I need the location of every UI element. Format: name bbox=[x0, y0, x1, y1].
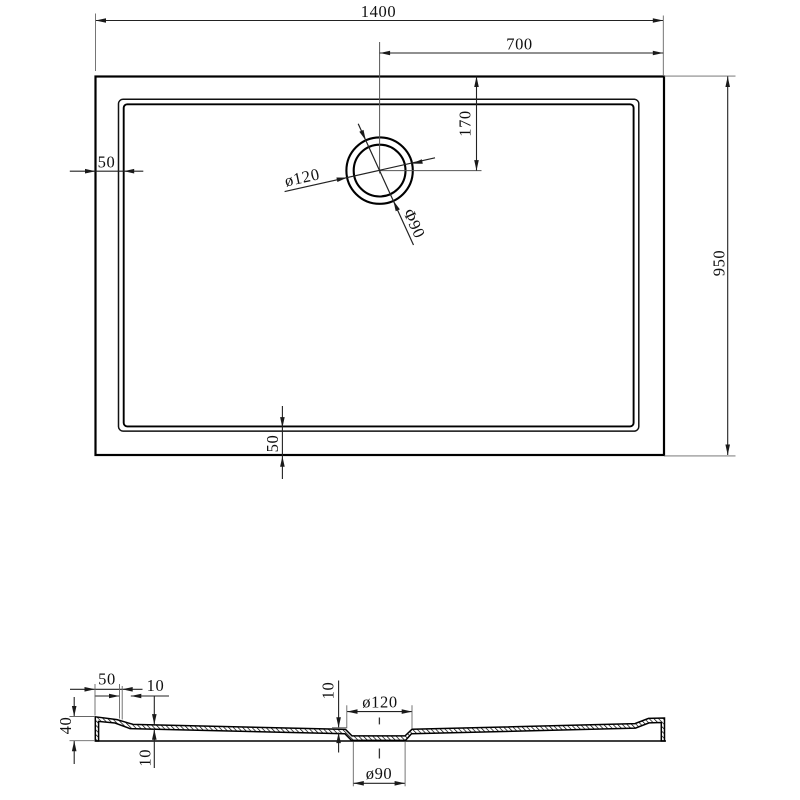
svg-text:700: 700 bbox=[506, 35, 533, 54]
svg-text:10: 10 bbox=[319, 682, 338, 700]
svg-text:170: 170 bbox=[456, 110, 475, 137]
svg-text:50: 50 bbox=[98, 152, 116, 171]
svg-text:1400: 1400 bbox=[361, 2, 396, 21]
svg-text:10: 10 bbox=[147, 676, 165, 695]
svg-text:50: 50 bbox=[263, 435, 282, 453]
svg-text:ø120: ø120 bbox=[362, 693, 397, 712]
svg-text:40: 40 bbox=[56, 717, 75, 735]
svg-text:950: 950 bbox=[710, 250, 729, 277]
svg-text:ø90: ø90 bbox=[366, 764, 393, 783]
svg-text:10: 10 bbox=[136, 749, 155, 767]
svg-text:50: 50 bbox=[98, 670, 116, 689]
